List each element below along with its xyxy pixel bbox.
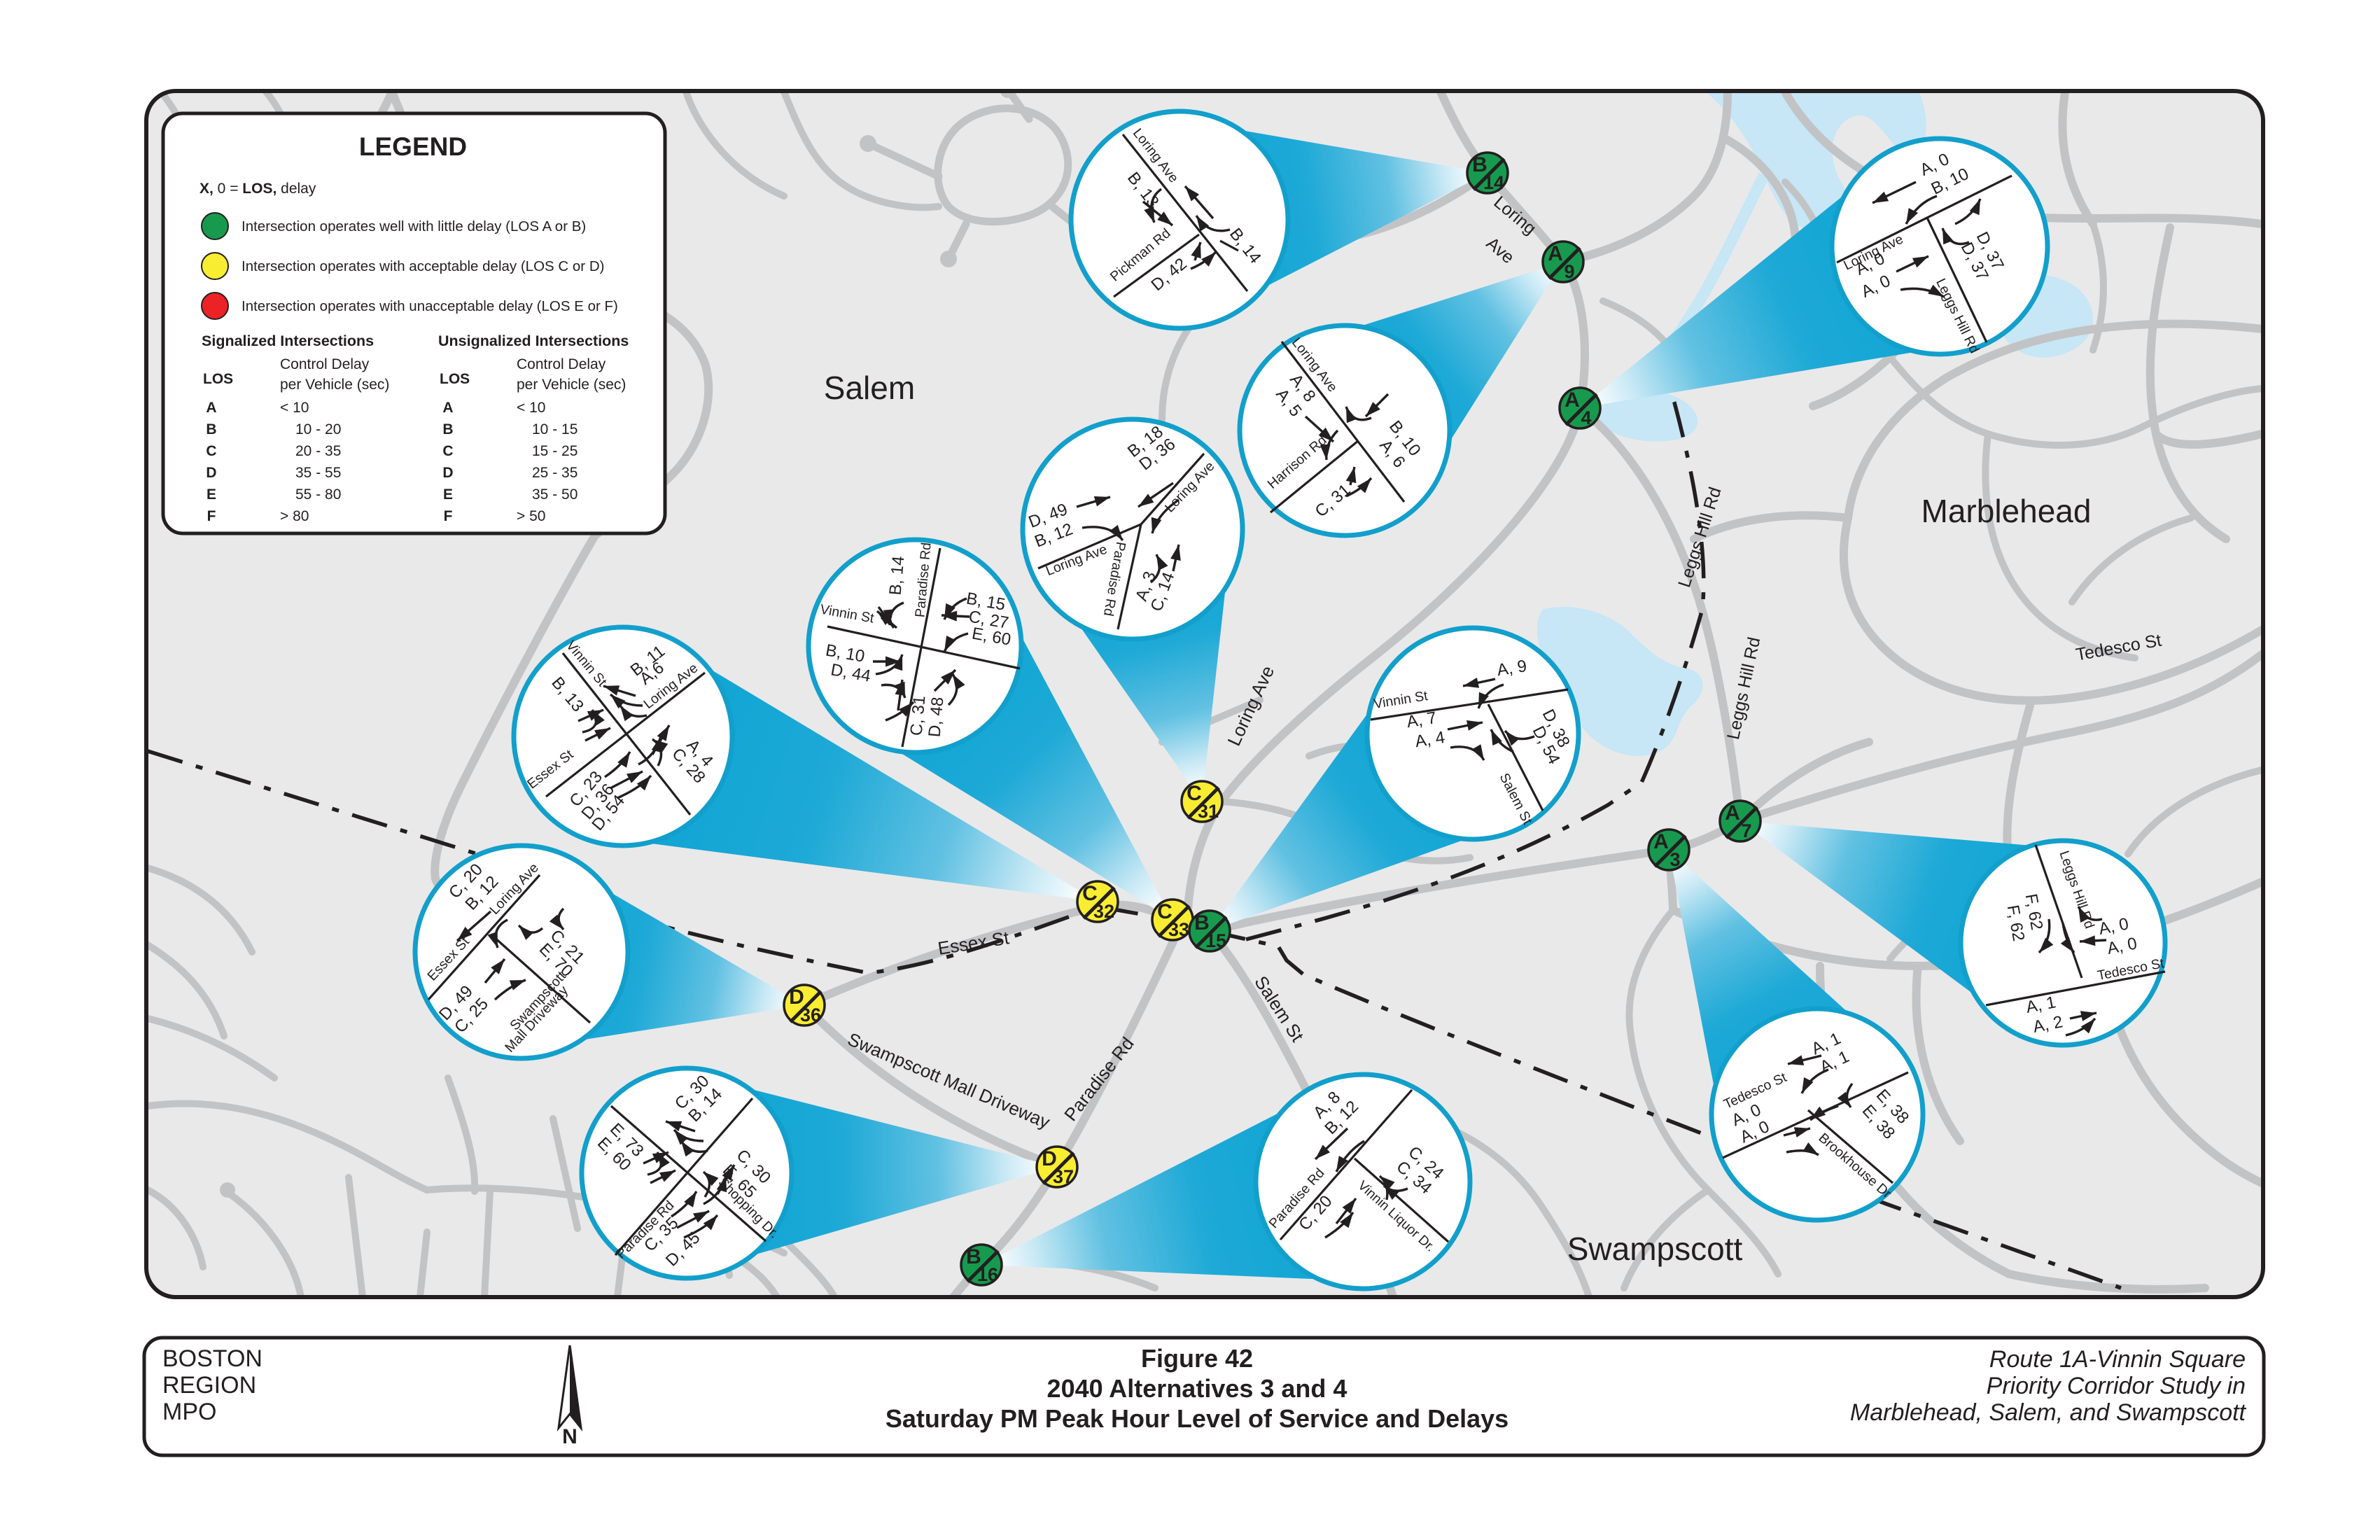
svg-text:Intersection operates with una: Intersection operates with unacceptable … — [241, 298, 618, 314]
svg-text:Control Delay: Control Delay — [280, 356, 370, 372]
svg-text:E: E — [206, 486, 216, 503]
svg-text:Priority Corridor Study in: Priority Corridor Study in — [1987, 1373, 2246, 1399]
svg-text:B: B — [442, 421, 453, 437]
svg-text:Salem: Salem — [824, 370, 915, 406]
svg-text:Swampscott: Swampscott — [1567, 1231, 1743, 1267]
svg-text:F: F — [444, 508, 453, 524]
svg-text:A: A — [1653, 830, 1669, 853]
svg-text:E: E — [443, 486, 453, 503]
svg-text:4: 4 — [1581, 407, 1591, 428]
svg-text:10 - 15: 10 - 15 — [532, 421, 577, 437]
svg-text:35 - 50: 35 - 50 — [532, 486, 577, 503]
svg-text:35 - 55: 35 - 55 — [295, 465, 341, 481]
svg-text:Figure 42: Figure 42 — [1141, 1344, 1253, 1373]
svg-text:55 - 80: 55 - 80 — [295, 486, 341, 503]
svg-text:9: 9 — [1564, 261, 1574, 282]
svg-text:31: 31 — [1198, 801, 1219, 822]
svg-text:20 - 35: 20 - 35 — [295, 443, 341, 459]
svg-text:3: 3 — [1669, 849, 1680, 870]
svg-text:MPO: MPO — [162, 1399, 216, 1425]
svg-text:A: A — [1548, 242, 1563, 265]
svg-text:10 - 20: 10 - 20 — [295, 421, 341, 437]
svg-text:Intersection operates well wit: Intersection operates well with little d… — [241, 218, 586, 234]
svg-text:D: D — [206, 465, 216, 481]
svg-text:14: 14 — [1483, 172, 1504, 193]
svg-text:2040 Alternatives 3 and 4: 2040 Alternatives 3 and 4 — [1047, 1374, 1347, 1403]
svg-text:A: A — [1725, 801, 1740, 825]
svg-text:> 80: > 80 — [280, 508, 309, 524]
svg-text:D, 48: D, 48 — [925, 696, 948, 738]
svg-text:< 10: < 10 — [280, 400, 309, 416]
svg-text:B: B — [206, 421, 216, 437]
svg-text:Signalized Intersections: Signalized Intersections — [202, 332, 374, 349]
svg-text:Intersection operates with acc: Intersection operates with acceptable de… — [241, 258, 604, 274]
svg-text:B, 14: B, 14 — [886, 555, 909, 596]
svg-text:D: D — [442, 465, 453, 481]
svg-text:per Vehicle (sec): per Vehicle (sec) — [280, 377, 389, 393]
svg-text:16: 16 — [977, 1264, 998, 1285]
svg-text:Control Delay: Control Delay — [517, 356, 606, 372]
svg-text:LEGEND: LEGEND — [359, 132, 467, 161]
svg-text:7: 7 — [1741, 820, 1751, 841]
svg-text:25 - 35: 25 - 35 — [532, 465, 577, 481]
svg-text:37: 37 — [1053, 1166, 1074, 1187]
svg-text:33: 33 — [1168, 919, 1189, 940]
svg-text:Unsignalized Intersections: Unsignalized Intersections — [438, 332, 629, 349]
svg-text:Saturday PM Peak Hour Level of: Saturday PM Peak Hour Level of Service a… — [885, 1404, 1508, 1433]
svg-text:REGION: REGION — [162, 1372, 256, 1399]
svg-text:LOS: LOS — [203, 371, 233, 387]
svg-text:BOSTON: BOSTON — [162, 1345, 262, 1372]
svg-text:A: A — [1564, 388, 1580, 412]
svg-text:15: 15 — [1205, 930, 1226, 951]
svg-text:< 10: < 10 — [517, 400, 545, 416]
svg-text:F: F — [207, 508, 216, 524]
svg-text:32: 32 — [1093, 901, 1114, 922]
svg-text:Route 1A-Vinnin Square: Route 1A-Vinnin Square — [1989, 1346, 2246, 1373]
svg-text:Marblehead, Salem, and Swampsc: Marblehead, Salem, and Swampscott — [1850, 1399, 2247, 1426]
svg-text:N: N — [562, 1425, 577, 1448]
svg-text:A: A — [442, 400, 453, 416]
svg-text:C: C — [206, 443, 216, 459]
svg-text:36: 36 — [800, 1004, 821, 1025]
svg-text:per Vehicle (sec): per Vehicle (sec) — [517, 377, 626, 393]
svg-text:C: C — [442, 443, 453, 459]
svg-text:Marblehead: Marblehead — [1921, 493, 2092, 529]
svg-text:LOS: LOS — [440, 371, 470, 387]
svg-text:15 - 25: 15 - 25 — [532, 443, 577, 459]
svg-text:A: A — [206, 400, 216, 416]
svg-text:X, 0 = LOS, delay: X, 0 = LOS, delay — [199, 181, 316, 197]
svg-text:> 50: > 50 — [517, 508, 545, 524]
